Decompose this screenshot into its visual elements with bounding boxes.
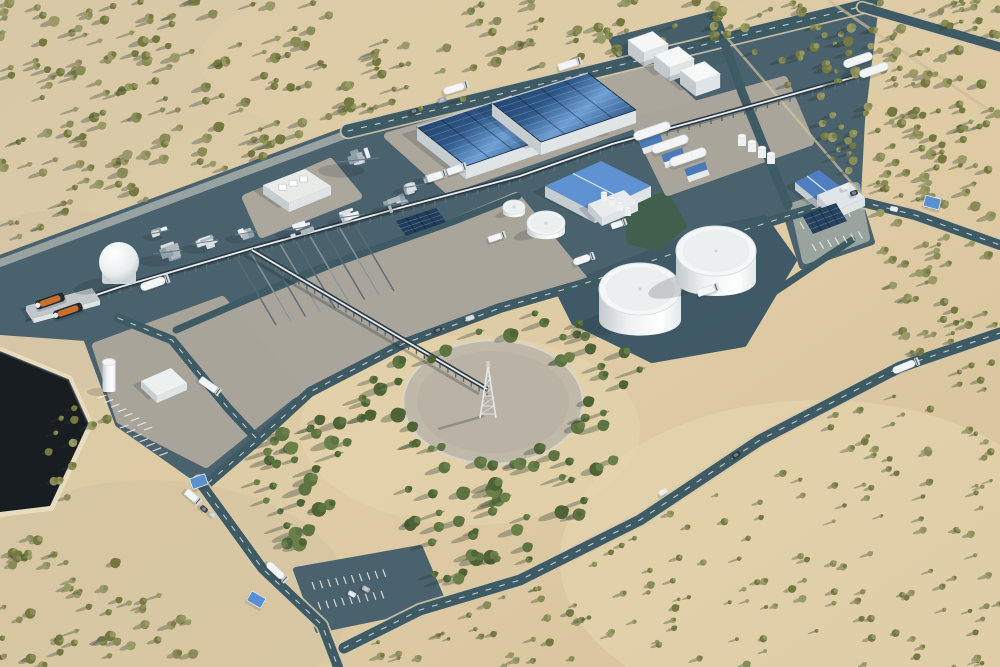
vegetation-canopy [264, 50, 267, 53]
vegetation-canopy [104, 16, 110, 22]
vegetation-canopy [63, 201, 67, 205]
vegetation-canopy [800, 4, 803, 7]
vegetation-canopy [687, 525, 690, 528]
vegetation-canopy [889, 456, 892, 459]
vegetation-canopy [287, 52, 291, 56]
vegetation-canopy [432, 490, 438, 496]
vegetation-canopy [825, 60, 830, 65]
vegetation-canopy [880, 153, 886, 159]
vegetation-canopy [74, 640, 78, 644]
vegetation-canopy [84, 33, 87, 36]
vegetation-canopy [67, 584, 72, 589]
vegetation-canopy [601, 35, 607, 41]
vegetation-canopy [954, 307, 958, 311]
vegetation-canopy [674, 23, 677, 26]
vegetation-canopy [447, 575, 452, 580]
vegetation-canopy [168, 43, 172, 47]
vegetation-canopy [944, 200, 949, 205]
vegetation-canopy [679, 555, 683, 559]
vegetation-canopy [970, 609, 973, 612]
vegetation-canopy [79, 160, 84, 165]
vegetation-canopy [621, 543, 624, 546]
vegetation-canopy [290, 84, 295, 89]
rooftop-unit [279, 184, 287, 190]
vegetation-canopy [981, 80, 987, 86]
vegetation-canopy [103, 585, 108, 590]
vegetation-canopy [109, 653, 112, 656]
vegetation-canopy [0, 34, 5, 39]
vegetation-canopy [164, 134, 170, 140]
vegetation-canopy [922, 527, 926, 531]
vegetation-canopy [441, 443, 446, 448]
vegetation-canopy [337, 451, 341, 455]
vegetation-canopy [834, 589, 838, 593]
vegetation-canopy [944, 298, 949, 303]
vegetation-canopy [971, 363, 975, 367]
vegetation-canopy [171, 621, 176, 626]
vessel-top [609, 197, 615, 200]
vegetation-canopy [925, 330, 929, 334]
vegetation-canopy [73, 75, 77, 79]
vegetation-canopy [804, 578, 807, 581]
vegetation-canopy [442, 632, 444, 634]
vegetation-canopy [37, 536, 43, 542]
vegetation-canopy [310, 474, 318, 482]
vegetation-canopy [3, 605, 6, 608]
vertical-vessels-ne [767, 152, 775, 164]
vegetation-canopy [42, 12, 46, 16]
vegetation-canopy [471, 550, 478, 557]
vegetation-canopy [53, 477, 58, 482]
vegetation-canopy [561, 506, 569, 514]
vegetation-canopy [867, 103, 872, 108]
vegetation-canopy [959, 76, 963, 80]
vegetation-canopy [274, 83, 279, 88]
vegetation-canopy [980, 377, 984, 381]
vegetation-canopy [982, 485, 985, 488]
vegetation-canopy [970, 531, 975, 536]
vegetation-canopy [55, 431, 58, 434]
vegetation-canopy [378, 640, 380, 642]
vegetation-canopy [434, 571, 438, 575]
vegetation-canopy [29, 535, 33, 539]
vegetation-canopy [984, 455, 988, 459]
vegetation-canopy [273, 483, 277, 487]
vegetation-canopy [906, 595, 909, 598]
vegetation-canopy [10, 65, 13, 68]
vegetation-canopy [577, 512, 582, 517]
vegetation-canopy [280, 135, 286, 141]
vegetation-canopy [29, 555, 32, 558]
vegetation-canopy [59, 477, 64, 482]
vegetation-canopy [118, 597, 122, 601]
vegetation-canopy [836, 79, 839, 82]
vegetation-canopy [764, 578, 769, 583]
vegetation-canopy [280, 509, 284, 513]
vegetation-canopy [875, 446, 879, 450]
vegetation-canopy [262, 152, 267, 157]
vegetation-canopy [70, 200, 73, 203]
vegetation-canopy [946, 234, 950, 238]
vegetation-canopy [984, 311, 987, 314]
vegetation-canopy [880, 0, 884, 4]
vegetation-canopy [569, 352, 575, 358]
unit-shadow [318, 164, 364, 177]
vegetation-canopy [942, 150, 945, 153]
flare-tip [487, 361, 490, 367]
vegetation-canopy [131, 183, 136, 188]
vegetation-canopy [391, 99, 395, 103]
vegetation-canopy [10, 220, 13, 223]
vegetation-canopy [481, 2, 485, 6]
vegetation-canopy [965, 189, 970, 194]
vegetation-canopy [55, 552, 58, 555]
vegetation-canopy [870, 615, 874, 619]
vegetation-canopy [857, 598, 861, 602]
vegetation-canopy [724, 518, 728, 522]
vegetation-canopy [473, 65, 477, 69]
vegetation-canopy [145, 52, 150, 57]
vegetation-canopy [412, 422, 418, 428]
vegetation-canopy [959, 382, 962, 385]
vegetation-canopy [188, 620, 192, 624]
vegetation-canopy [240, 108, 243, 111]
vegetation-canopy [833, 520, 835, 522]
vegetation-canopy [703, 560, 707, 564]
vegetation-canopy [310, 27, 315, 32]
vegetation-canopy [162, 108, 165, 111]
vegetation-canopy [894, 76, 897, 79]
vegetation-canopy [213, 161, 217, 165]
vegetation-canopy [892, 107, 898, 113]
vegetation-canopy [848, 50, 852, 54]
vegetation-canopy [942, 584, 946, 588]
vegetation-canopy [634, 536, 637, 539]
vegetation-canopy [148, 14, 153, 19]
vegetation-canopy [544, 318, 550, 324]
vegetation-canopy [131, 31, 134, 34]
vegetation-canopy [406, 85, 409, 88]
vegetation-canopy [870, 43, 874, 47]
vegetation-canopy [986, 439, 989, 442]
vegetation-canopy [294, 457, 298, 461]
vegetation-canopy [101, 122, 106, 127]
vegetation-canopy [859, 407, 863, 411]
vegetation-canopy [577, 26, 583, 32]
vegetation-canopy [754, 50, 757, 53]
vegetation-canopy [111, 51, 116, 56]
vegetation-canopy [2, 636, 5, 639]
vegetation-canopy [716, 494, 718, 496]
vegetation-canopy [41, 225, 44, 228]
vegetation-canopy [163, 155, 169, 161]
vegetation-canopy [900, 24, 906, 30]
vegetation-canopy [744, 24, 749, 29]
vegetation-canopy [714, 22, 719, 27]
vegetation-canopy [601, 363, 606, 368]
vegetation-canopy [53, 17, 59, 23]
vegetation-canopy [830, 424, 834, 428]
vegetation-canopy [345, 82, 351, 88]
vegetation-canopy [142, 37, 148, 43]
vegetation-canopy [576, 38, 579, 41]
vertical-vessels-ne [758, 146, 766, 158]
vegetation-canopy [865, 111, 868, 114]
vegetation-canopy [92, 422, 97, 427]
vertical-vessels-center [601, 192, 607, 202]
vegetation-canopy [881, 514, 883, 516]
vegetation-canopy [634, 620, 637, 623]
vegetation-canopy [853, 157, 858, 162]
vegetation-canopy [988, 572, 992, 576]
silo-top [103, 359, 116, 366]
vegetation-canopy [398, 378, 403, 383]
vegetation-canopy [962, 155, 967, 160]
vegetation-canopy [744, 587, 747, 590]
vegetation-canopy [516, 657, 520, 661]
vegetation-canopy [892, 256, 897, 261]
vegetation-canopy [760, 500, 763, 503]
vegetation-canopy [143, 598, 147, 602]
vegetation-canopy [589, 616, 592, 619]
vegetation-canopy [729, 600, 731, 602]
vegetation-canopy [385, 39, 388, 42]
vegetation-canopy [571, 477, 575, 481]
vegetation-canopy [72, 439, 77, 444]
vegetation-canopy [376, 49, 379, 52]
vegetation-canopy [145, 151, 151, 157]
vegetation-canopy [156, 36, 161, 41]
vegetation-canopy [588, 397, 595, 404]
vegetation-canopy [965, 126, 969, 130]
vegetation-canopy [495, 57, 501, 63]
vegetation-canopy [929, 479, 933, 483]
vegetation-canopy [446, 44, 451, 49]
vegetation-canopy [976, 484, 978, 486]
vegetation-canopy [975, 202, 981, 208]
vegetation-canopy [930, 406, 934, 410]
vegetation-canopy [412, 441, 416, 445]
vegetation-canopy [478, 329, 482, 333]
vegetation-canopy [919, 131, 924, 136]
vegetation-canopy [463, 96, 467, 100]
vegetation-canopy [884, 247, 889, 252]
vegetation-canopy [17, 221, 20, 224]
vegetation-canopy [959, 101, 964, 106]
vegetation-canopy [984, 387, 987, 390]
vegetation-canopy [982, 661, 985, 664]
vertical-vessels-center [609, 197, 615, 207]
vegetation-canopy [946, 79, 952, 85]
vegetation-canopy [864, 438, 868, 442]
vegetation-canopy [494, 478, 502, 486]
vegetation-canopy [894, 32, 897, 35]
vegetation-canopy [492, 507, 497, 512]
vegetation-canopy [16, 555, 21, 560]
vegetation-canopy [535, 587, 538, 590]
vegetation-canopy [348, 98, 354, 104]
vegetation-canopy [986, 604, 990, 608]
vegetation-canopy [206, 97, 211, 102]
vegetation-canopy [895, 83, 898, 86]
vegetation-canopy [539, 444, 546, 451]
vegetation-canopy [78, 60, 82, 64]
vegetation-canopy [316, 429, 322, 435]
vegetation-canopy [169, 64, 173, 68]
vegetation-canopy [438, 522, 444, 528]
vegetation-canopy [939, 243, 942, 246]
vegetation-canopy [978, 17, 982, 21]
vegetation-canopy [442, 68, 445, 71]
vegetation-canopy [963, 136, 967, 140]
vegetation-canopy [679, 598, 681, 600]
vegetation-canopy [19, 617, 23, 621]
vegetation-canopy [598, 23, 604, 29]
vegetation-canopy [30, 654, 36, 660]
vegetation-canopy [824, 133, 829, 138]
vegetation-canopy [519, 458, 526, 465]
vegetation-canopy [835, 412, 839, 416]
vegetation-canopy [913, 70, 918, 75]
vegetation-canopy [921, 145, 925, 149]
vegetation-canopy [118, 181, 122, 185]
vegetation-canopy [74, 416, 79, 421]
vegetation-canopy [943, 316, 947, 320]
vegetation-canopy [4, 9, 9, 14]
vegetation-canopy [308, 81, 313, 86]
vegetation-canopy [834, 601, 837, 604]
vegetation-canopy [510, 329, 519, 338]
vegetation-canopy [11, 72, 15, 76]
vegetation-canopy [897, 219, 902, 224]
vegetation-canopy [896, 471, 899, 474]
vegetation-canopy [929, 265, 932, 268]
vegetation-canopy [42, 169, 47, 174]
vegetation-canopy [174, 54, 180, 60]
vegetation-canopy [503, 596, 505, 598]
vegetation-canopy [977, 655, 982, 660]
vegetation-canopy [276, 78, 279, 81]
vegetation-canopy [179, 125, 183, 129]
rooftop-unit [300, 176, 308, 182]
vegetation-canopy [919, 270, 924, 275]
vegetation-canopy [862, 589, 865, 592]
vegetation-canopy [571, 656, 574, 659]
vegetation-canopy [122, 168, 128, 174]
dome-sphere [99, 242, 139, 282]
vegetation-canopy [304, 41, 310, 47]
vegetation-canopy [180, 615, 186, 621]
vegetation-canopy [569, 610, 574, 615]
vegetation-canopy [328, 12, 333, 17]
vegetation-canopy [245, 98, 251, 104]
vessel-top [617, 202, 623, 205]
vegetation-canopy [885, 185, 890, 190]
vegetation-canopy [975, 553, 977, 555]
vegetation-canopy [72, 462, 77, 467]
vegetation-canopy [874, 27, 878, 31]
vegetation-canopy [942, 155, 947, 160]
vegetation-canopy [950, 339, 954, 343]
vegetation-canopy [113, 3, 117, 7]
vegetation-canopy [370, 410, 377, 417]
vertical-vessels-center [617, 202, 623, 212]
vegetation-canopy [531, 3, 536, 8]
vegetation-canopy [46, 562, 51, 567]
vegetation-canopy [936, 165, 940, 169]
vegetation-canopy [921, 516, 924, 519]
vegetation-canopy [737, 637, 739, 639]
vegetation-canopy [832, 112, 836, 116]
vegetation-canopy [47, 129, 53, 135]
vegetation-canopy [608, 32, 613, 37]
vegetation-canopy [150, 19, 153, 22]
vegetation-canopy [782, 470, 786, 474]
vegetation-canopy [398, 651, 402, 655]
vegetation-canopy [766, 605, 768, 607]
vegetation-canopy [575, 31, 578, 34]
vegetation-canopy [470, 8, 475, 13]
vertical-vessels-ne [748, 140, 756, 152]
vegetation-canopy [658, 642, 662, 646]
vegetation-canopy [920, 350, 923, 353]
vegetation-canopy [818, 25, 822, 29]
vegetation-canopy [376, 67, 379, 70]
vegetation-canopy [816, 629, 818, 631]
vegetation-canopy [475, 528, 479, 532]
vegetation-canopy [48, 448, 53, 453]
vegetation-canopy [266, 498, 270, 502]
vegetation-canopy [930, 569, 933, 572]
silo-shell [103, 362, 116, 392]
vegetation-canopy [913, 82, 916, 85]
vegetation-canopy [981, 506, 984, 509]
vegetation-canopy [98, 180, 103, 185]
vegetation-canopy [849, 151, 852, 154]
vegetation-canopy [822, 120, 826, 124]
vegetation-canopy [414, 516, 421, 523]
vegetation-canopy [792, 0, 796, 4]
vegetation-canopy [624, 348, 631, 355]
vegetation-canopy [982, 617, 985, 620]
vegetation-canopy [626, 29, 629, 32]
vegetation-canopy [226, 59, 231, 64]
vegetation-canopy [926, 269, 931, 274]
vegetation-canopy [74, 406, 78, 410]
vegetation-canopy [295, 527, 303, 535]
vegetation-canopy [35, 58, 38, 61]
vegetation-canopy [866, 495, 870, 499]
vegetation-canopy [975, 26, 978, 29]
vegetation-canopy [935, 72, 938, 75]
vegetation-canopy [759, 13, 762, 16]
vegetation-canopy [315, 465, 320, 470]
vegetation-canopy [365, 399, 370, 404]
vegetation-canopy [948, 261, 952, 265]
vegetation-canopy [257, 480, 261, 484]
vegetation-canopy [408, 62, 411, 65]
vegetation-canopy [493, 631, 497, 635]
vegetation-canopy [878, 181, 881, 184]
vegetation-canopy [308, 525, 315, 532]
vegetation-canopy [75, 107, 78, 110]
vegetation-canopy [895, 159, 900, 164]
vegetation-canopy [295, 26, 298, 29]
vessel-top [767, 152, 775, 156]
vegetation-canopy [310, 425, 314, 429]
vegetation-canopy [106, 90, 110, 94]
vegetation-canopy [98, 80, 102, 84]
